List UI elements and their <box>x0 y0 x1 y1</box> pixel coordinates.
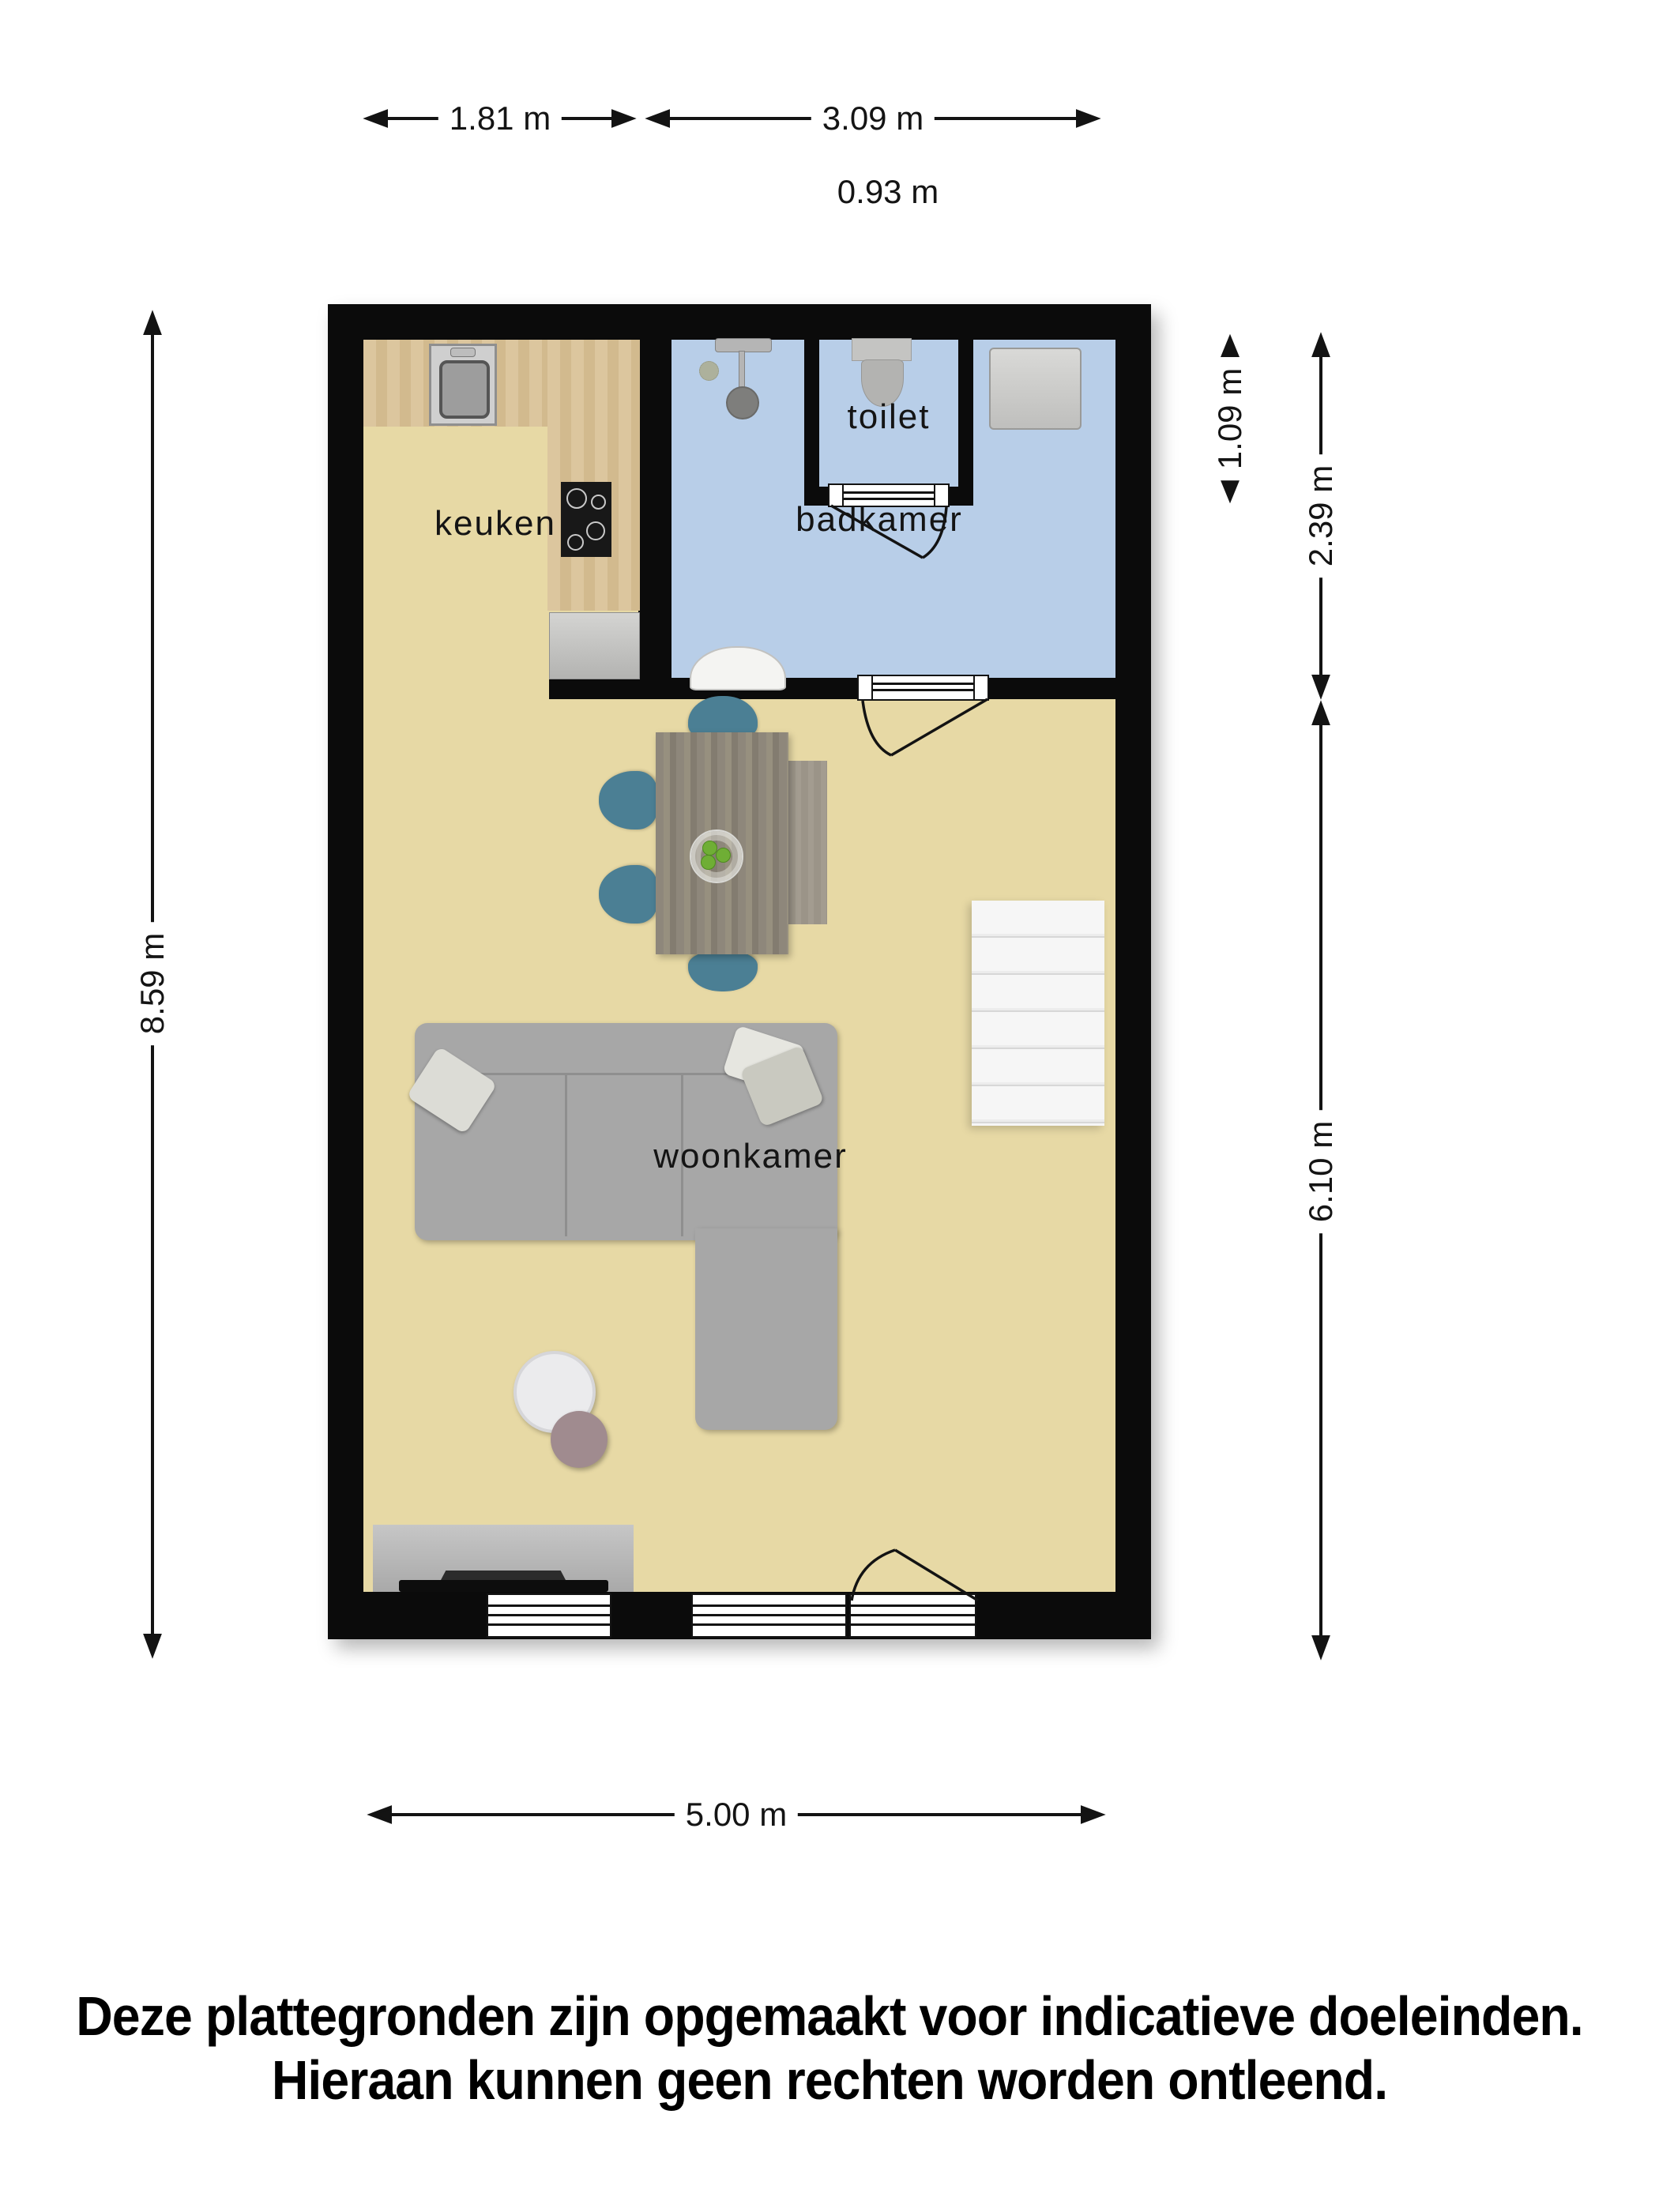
dim-toilet-depth: 1.09 m <box>1211 357 1249 480</box>
arrow-down-icon <box>1314 676 1328 695</box>
arrow-up-icon <box>145 314 160 333</box>
arrow-up-icon <box>1314 705 1328 724</box>
door-swing-icon <box>863 701 891 755</box>
room-label-bathroom: badkamer <box>796 500 963 540</box>
door-leaf-icon <box>895 1550 978 1601</box>
dim-bathroom-depth: 2.39 m <box>1302 454 1340 577</box>
room-label-kitchen: keuken <box>434 504 556 544</box>
arrow-down-icon <box>1314 1637 1328 1656</box>
floorplan-page: keuken toilet badkamer woonkamer 1.81 m … <box>0 0 1659 2212</box>
dim-living-width: 5.00 m <box>675 1796 798 1834</box>
door-leaf-icon <box>891 699 987 755</box>
disclaimer-line1: Deze plattegronden zijn opgemaakt voor i… <box>66 1984 1593 2048</box>
door-swing-icon <box>852 1550 895 1601</box>
arrow-up-icon <box>1223 338 1237 355</box>
dim-toilet-width: 0.93 m <box>826 173 950 211</box>
arrow-right-icon <box>1082 1808 1101 1822</box>
dim-total-depth: 8.59 m <box>134 922 171 1045</box>
disclaimer-line2: Hieraan kunnen geen rechten worden ontle… <box>66 2048 1593 2112</box>
arrow-left-icon <box>371 1808 390 1822</box>
dim-kitchen-width: 1.81 m <box>438 100 562 137</box>
dim-bathroom-width: 3.09 m <box>811 100 935 137</box>
disclaimer: Deze plattegronden zijn opgemaakt voor i… <box>0 1984 1659 2112</box>
dimension-and-door-overlay <box>0 0 1659 2212</box>
arrow-left-icon <box>367 111 386 126</box>
arrow-up-icon <box>1314 337 1328 355</box>
arrow-down-icon <box>145 1635 160 1654</box>
arrow-down-icon <box>1223 482 1237 499</box>
dim-living-depth: 6.10 m <box>1302 1110 1340 1233</box>
arrow-right-icon <box>1078 111 1097 126</box>
room-label-living: woonkamer <box>653 1137 847 1176</box>
arrow-right-icon <box>613 111 632 126</box>
arrow-left-icon <box>649 111 668 126</box>
room-label-toilet: toilet <box>848 397 931 437</box>
